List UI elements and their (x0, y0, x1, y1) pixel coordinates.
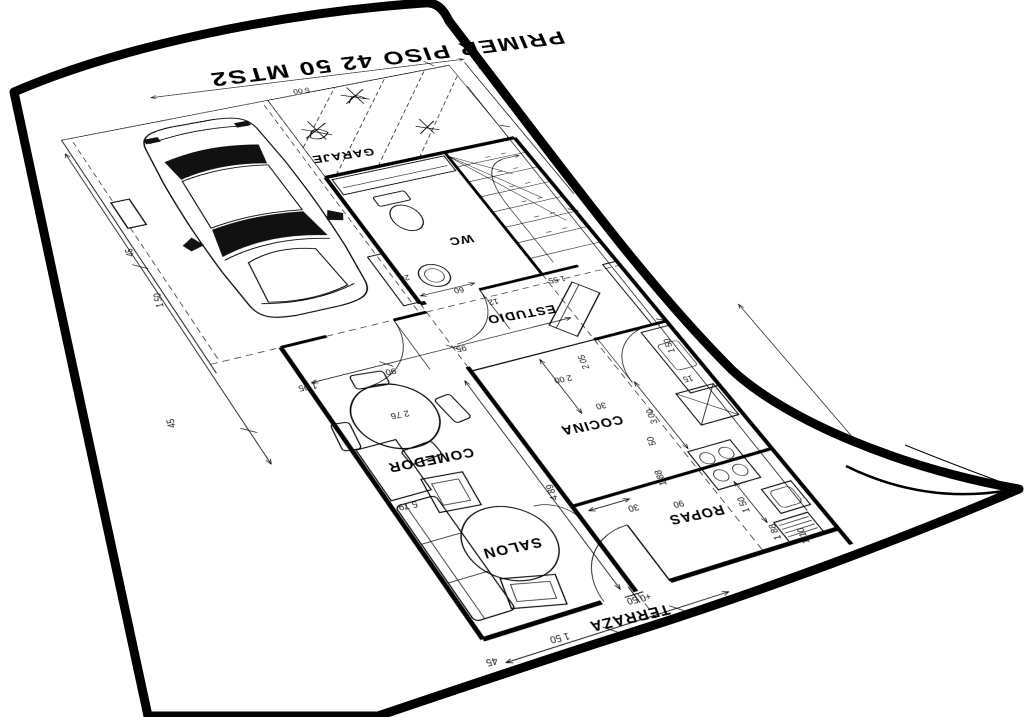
dimension-label: 90 (672, 498, 686, 509)
room-label: GARAJE (310, 146, 376, 166)
dimension-label: 45 (165, 418, 179, 429)
dimension-label: 26 (398, 273, 411, 283)
planter-box (111, 199, 146, 228)
dimension-label: 12 (487, 297, 500, 307)
dimension-label: 2 05 (576, 354, 592, 370)
dimension-label: 5 00 (292, 86, 311, 95)
fridge-icon (676, 384, 739, 425)
dimension-label: 15 (681, 373, 694, 383)
entry-court (268, 65, 510, 177)
dimension-label: 30 (626, 502, 640, 513)
screenshot-stage: PRIMER PISO 42 50 MTS2 GARAJEWCESTUDIOCO… (0, 0, 1024, 717)
salon-furniture (356, 420, 598, 631)
toilet-icon (373, 191, 432, 234)
washbasin-icon (413, 262, 457, 290)
room-label: WC (447, 232, 476, 248)
staircase-icon (448, 141, 607, 266)
dimension-label: 45 (123, 248, 136, 257)
room-label: COMEDOR (386, 445, 476, 476)
dimension-label: 5 79 (397, 499, 419, 512)
dimension-label: 2 00 (553, 373, 574, 385)
stove-icon (688, 440, 761, 490)
dimension-label: 50 (645, 436, 659, 446)
dimension-label: 95 (455, 343, 468, 353)
dimension-label: 60 (452, 285, 465, 295)
side-table (421, 472, 481, 513)
room-label: COCINA (558, 412, 625, 437)
dimension-label: 1 05 (297, 381, 318, 393)
dimension-label: 30 (594, 400, 607, 410)
dimension-label: 1 55 (547, 274, 567, 285)
stair-direction-arrow (475, 155, 598, 262)
dimension-label: 1 50 (735, 496, 752, 514)
room-label: SALON (480, 534, 544, 561)
dimension-label: 90 (384, 366, 397, 376)
